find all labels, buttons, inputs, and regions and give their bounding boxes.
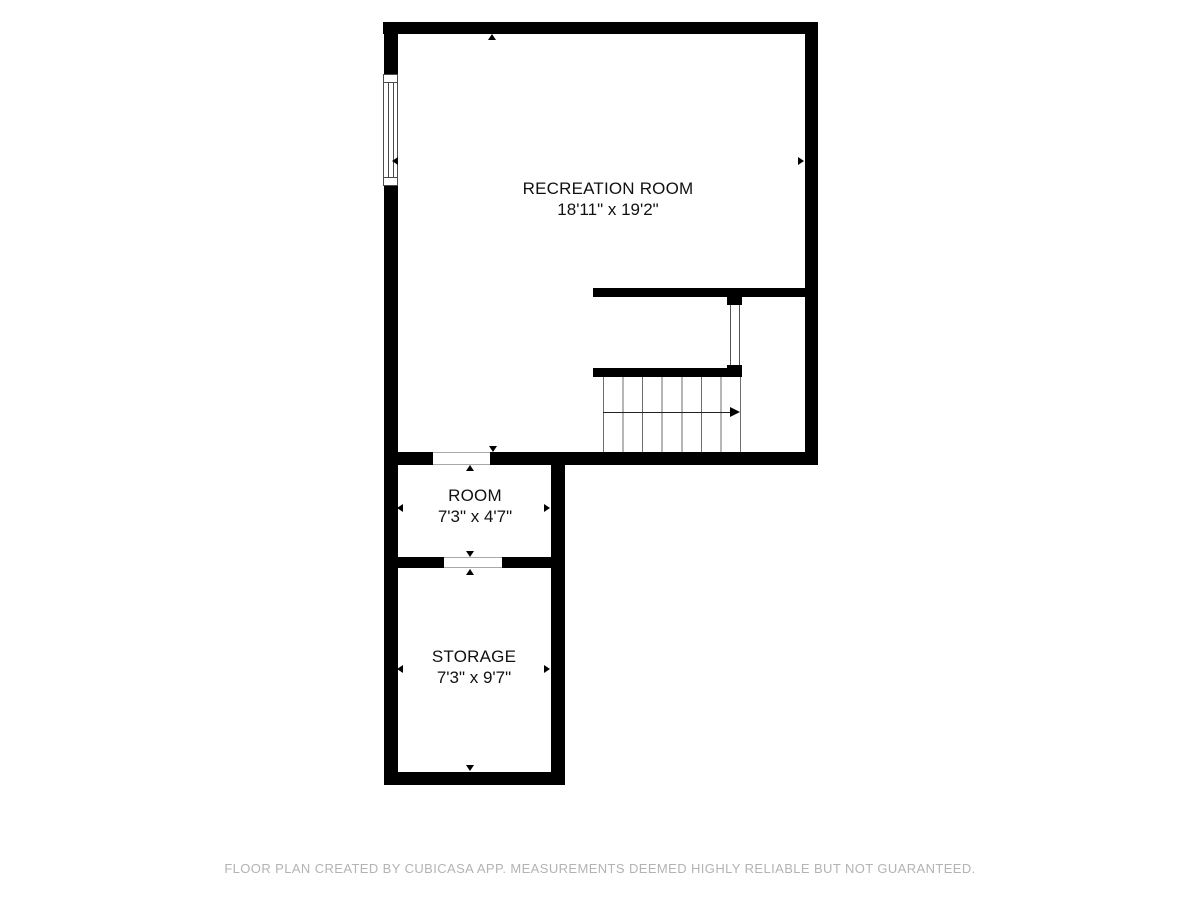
wall-recreation-bottom-left-segment [384,452,433,465]
room-label-storage: STORAGE 7'3" x 9'7" [432,646,516,688]
dimension-arrow-down-icon [466,551,474,557]
wall-railing-post-top [727,296,742,305]
dimension-arrow-left-icon [397,504,403,512]
dimension-arrow-down-icon [489,446,497,452]
wall-stairwell-upper [593,288,818,297]
dimension-arrow-up-icon [488,34,496,40]
wall-room-storage-divider-right-segment [502,557,564,568]
wall-storage-bottom [384,772,565,785]
wall-left-main [384,186,398,785]
wall-right [805,22,818,465]
window-icon [383,74,398,186]
dimension-arrow-right-icon [544,504,550,512]
stairs [603,377,741,452]
floor-plan: RECREATION ROOM 18'11" x 19'2" ROOM 7'3"… [0,0,1200,900]
dimension-arrow-up-icon [466,465,474,471]
room-label-room: ROOM 7'3" x 4'7" [438,485,512,527]
room-dimensions: 7'3" x 4'7" [438,506,512,527]
wall-top [383,22,818,34]
wall-recreation-bottom-right-segment [490,452,818,465]
room-label-recreation: RECREATION ROOM 18'11" x 19'2" [523,178,694,220]
wall-left-upper [384,22,398,74]
doorway-recreation-room-threshold-bottom [433,464,490,465]
dimension-arrow-right-icon [544,665,550,673]
wall-stairwell-lower [593,368,741,377]
wall-room-storage-divider-left-segment [384,557,444,568]
room-name: ROOM [438,485,512,506]
room-dimensions: 7'3" x 9'7" [432,667,516,688]
stairs-direction-arrow-icon [730,407,740,417]
doorway-recreation-room-threshold-top [433,452,490,453]
dimension-arrow-right-icon [798,157,804,165]
dimension-arrow-down-icon [466,765,474,771]
footer-disclaimer: FLOOR PLAN CREATED BY CUBICASA APP. MEAS… [0,861,1200,876]
stair-railing [730,297,740,367]
stairs-direction-arrow-shaft [603,412,731,413]
dimension-arrow-up-icon [466,569,474,575]
room-dimensions: 18'11" x 19'2" [523,199,694,220]
doorway-room-storage-threshold-bottom [444,567,502,568]
room-name: RECREATION ROOM [523,178,694,199]
room-name: STORAGE [432,646,516,667]
dimension-arrow-left-icon [392,157,398,165]
doorway-room-storage-threshold-top [444,557,502,558]
wall-room-right [551,452,565,785]
dimension-arrow-left-icon [397,665,403,673]
